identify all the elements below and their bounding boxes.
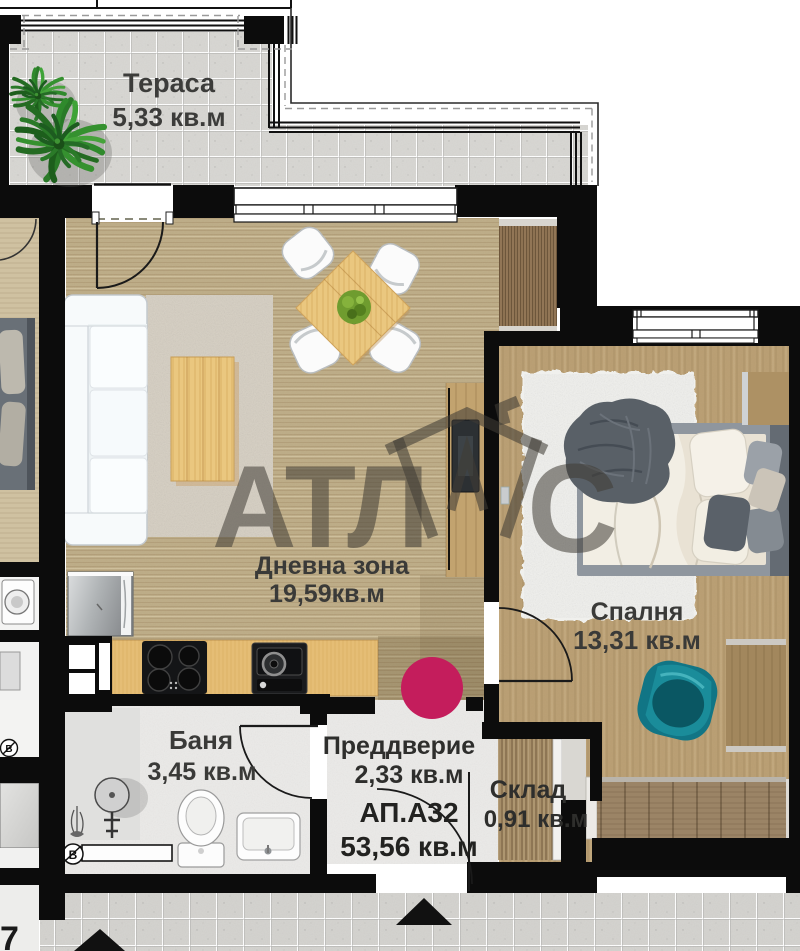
- svg-text:0,91 кв.м: 0,91 кв.м: [484, 806, 589, 833]
- svg-text:2,33 кв.м: 2,33 кв.м: [355, 761, 464, 789]
- svg-text:7: 7: [0, 920, 19, 951]
- svg-text:3,45 кв.м: 3,45 кв.м: [148, 758, 257, 786]
- svg-text:19,59кв.м: 19,59кв.м: [269, 580, 385, 608]
- svg-text:5,33 кв.м: 5,33 кв.м: [112, 102, 225, 132]
- svg-text:Дневна зона: Дневна зона: [255, 552, 410, 580]
- svg-text:13,31 кв.м: 13,31 кв.м: [573, 625, 701, 655]
- svg-text:Тераса: Тераса: [123, 68, 216, 98]
- svg-text:B: B: [69, 848, 78, 862]
- svg-text:С: С: [527, 438, 618, 579]
- svg-text:B: B: [5, 744, 12, 755]
- svg-text:53,56 кв.м: 53,56 кв.м: [340, 831, 478, 862]
- svg-text:Спалня: Спалня: [591, 598, 684, 626]
- svg-text:Преддверие: Преддверие: [323, 732, 475, 760]
- svg-text:АП.А32: АП.А32: [359, 797, 458, 828]
- svg-text:Склад: Склад: [490, 776, 567, 804]
- svg-text:Баня: Баня: [169, 725, 233, 755]
